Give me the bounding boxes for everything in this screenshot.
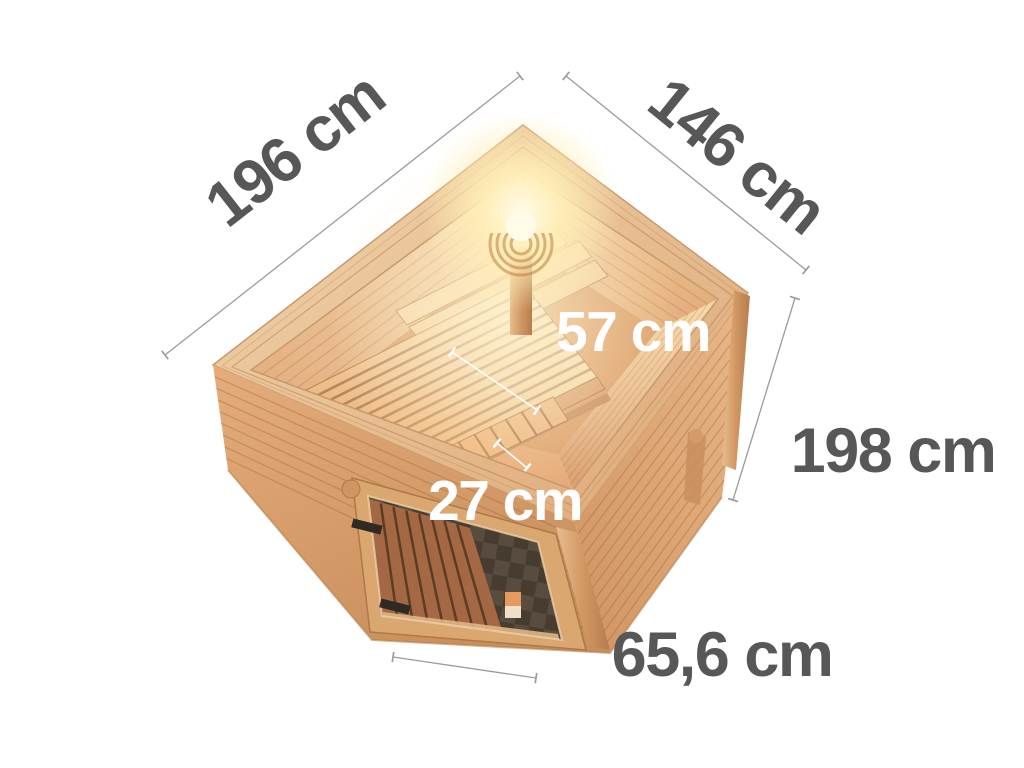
label-bench-depth: 57 cm [556, 300, 710, 364]
wall-stud-cap [689, 429, 703, 443]
sauna-dimension-diagram: 196 cm 146 cm 198 cm 65,6 cm 57 cm 27 cm [0, 0, 1024, 768]
label-lower-bench-depth: 27 cm [428, 469, 582, 533]
sauna-product-dimension-image: 196 cm 146 cm 198 cm 65,6 cm 57 cm 27 cm [0, 0, 1024, 768]
dimension-line-door-width [393, 657, 536, 678]
label-door-width: 65,6 cm [612, 620, 833, 690]
door-handle [505, 606, 521, 618]
label-wall-height: 198 cm [791, 416, 996, 486]
door-frame-knob [342, 480, 360, 498]
lamp-core [506, 211, 536, 241]
door-handle-plate [505, 592, 521, 606]
